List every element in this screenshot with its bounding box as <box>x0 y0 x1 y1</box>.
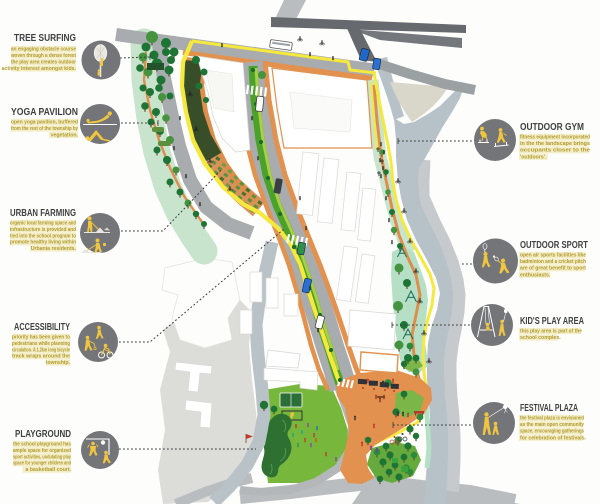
svg-text:in the the landscape brings: in the the landscape brings <box>520 141 590 147</box>
svg-text:sport activities, undulating p: sport activities, undulating play <box>13 454 71 460</box>
svg-text:the school playground has: the school playground has <box>13 442 71 448</box>
svg-text:this play area is part of the: this play area is part of the <box>520 329 582 335</box>
svg-text:a basketball court.: a basketball court. <box>25 467 71 473</box>
svg-text:space, encouraging gatherings: space, encouraging gatherings <box>520 429 584 435</box>
svg-text:vegetation.: vegetation. <box>51 133 79 139</box>
svg-text:as the main open community: as the main open community <box>520 422 584 428</box>
svg-text:ACCESSIBILITY: ACCESSIBILITY <box>14 322 70 333</box>
svg-text:occupants closer to the: occupants closer to the <box>520 148 590 154</box>
svg-text:TREE SURFING: TREE SURFING <box>14 33 76 44</box>
svg-text:YOGA PAVILION: YOGA PAVILION <box>11 107 78 118</box>
svg-text:FESTIVAL PLAZA: FESTIVAL PLAZA <box>520 403 578 414</box>
svg-text:PLAYGROUND: PLAYGROUND <box>15 429 71 440</box>
svg-text:promote healthy living within: promote healthy living within <box>10 240 76 246</box>
svg-text:OUTDOOR GYM: OUTDOOR GYM <box>520 122 584 133</box>
svg-text:the festival plaza is envision: the festival plaza is envisioned <box>520 416 584 422</box>
svg-text:pedestrians while planning: pedestrians while planning <box>12 341 70 347</box>
svg-text:fitness equipment incorporated: fitness equipment incorporated <box>520 135 590 141</box>
svg-text:ample space for organized: ample space for organized <box>13 448 71 454</box>
svg-text:priority has been given to: priority has been given to <box>12 335 70 341</box>
svg-text:KID'S PLAY AREA: KID'S PLAY AREA <box>520 316 584 327</box>
svg-text:space for younger children and: space for younger children and <box>13 461 71 467</box>
svg-text:Urbania residents.: Urbania residents. <box>31 246 77 252</box>
svg-text:OUTDOOR SPORT: OUTDOOR SPORT <box>520 240 588 251</box>
svg-text:the play area creates outdoor: the play area creates outdoor <box>11 60 76 66</box>
svg-text:from the rest of the township: from the rest of the township by <box>11 126 78 132</box>
svg-text:an engaging obstacle course: an engaging obstacle course <box>11 47 76 53</box>
svg-text:woven through a dense forest: woven through a dense forest <box>10 53 76 59</box>
svg-text:enthusiasts.: enthusiasts. <box>520 272 551 278</box>
svg-text:are of great benefit to sport: are of great benefit to sport <box>520 266 586 272</box>
svg-text:open yoga pavilion, buffered: open yoga pavilion, buffered <box>11 120 78 126</box>
svg-text:organic local farming space an: organic local farming space and <box>10 221 76 227</box>
svg-text:circulation. A 1.2km long bicy: circulation. A 1.2km long bicycle <box>12 347 70 353</box>
svg-text:township.: township. <box>46 360 71 366</box>
svg-text:infrastructure is provided and: infrastructure is provided and <box>10 227 76 233</box>
svg-text:for celebration of festivals.: for celebration of festivals. <box>520 435 587 441</box>
svg-text:track wraps around the: track wraps around the <box>12 354 70 360</box>
svg-text:badminton and a cricket pitch: badminton and a cricket pitch <box>520 259 586 265</box>
svg-text:activity interest amongst kids: activity interest amongst kids. <box>2 66 77 72</box>
svg-text:'outdoors'.: 'outdoors'. <box>520 154 547 160</box>
svg-text:URBAN FARMING: URBAN FARMING <box>10 208 76 219</box>
svg-text:tied into the school program t: tied into the school program to <box>10 233 76 239</box>
svg-text:open air sports facilities lik: open air sports facilities like <box>520 253 586 259</box>
svg-text:school complex.: school complex. <box>520 335 561 341</box>
